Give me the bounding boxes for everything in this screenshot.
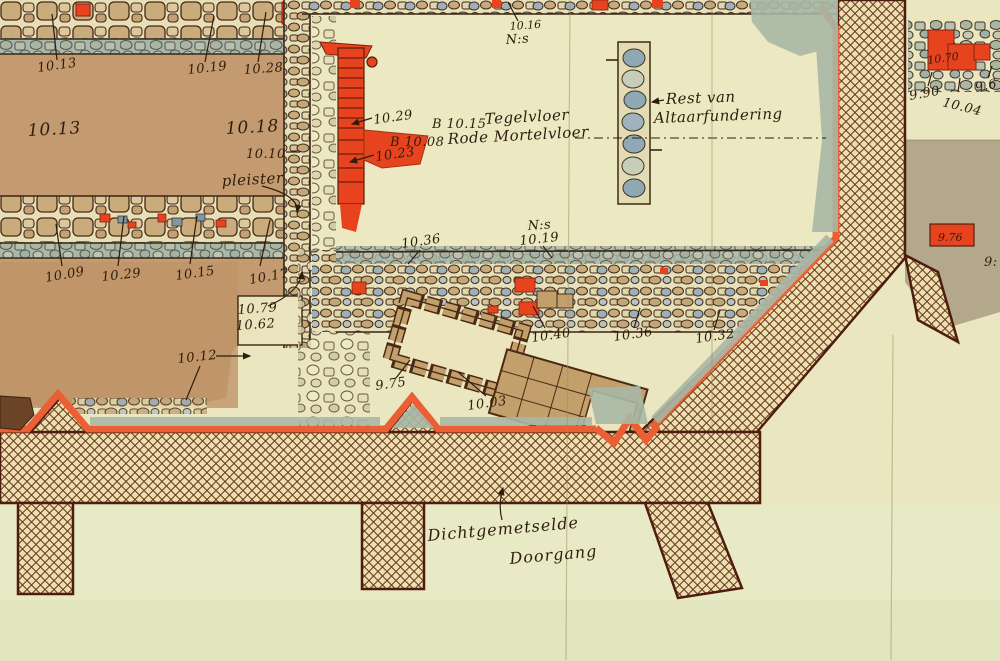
left-room-middle-wall bbox=[0, 196, 298, 258]
elevation-label: 10.10 bbox=[246, 147, 286, 162]
elevation-label: 10.13 bbox=[27, 118, 82, 141]
red-dot-stone bbox=[367, 57, 377, 67]
altar-label-line1: Rest van bbox=[665, 88, 736, 108]
niche-top-label: N:s bbox=[504, 31, 529, 48]
elevation-label-on-red: 9.76 bbox=[938, 231, 963, 244]
pleister-label: pleister bbox=[221, 169, 284, 190]
elevation-label: 10.79 bbox=[237, 300, 278, 318]
elevation-label: 9: bbox=[984, 255, 998, 270]
foreground-lower-band bbox=[0, 600, 1000, 661]
plan-drawing: 10.13 10.19 10.28 10.13 10.18 10.10 plei… bbox=[0, 0, 1000, 661]
elevation-label: 10.28 bbox=[243, 60, 284, 78]
left-room-north-wall bbox=[0, 0, 302, 54]
elevation-label: 10.18 bbox=[225, 116, 280, 139]
elevation-label: 10.62 bbox=[235, 316, 276, 334]
wall-buttress-1 bbox=[18, 503, 73, 594]
excavation-plan: 10.13 10.19 10.28 10.13 10.18 10.10 plei… bbox=[0, 0, 1000, 661]
wall-buttress-2 bbox=[362, 503, 424, 589]
